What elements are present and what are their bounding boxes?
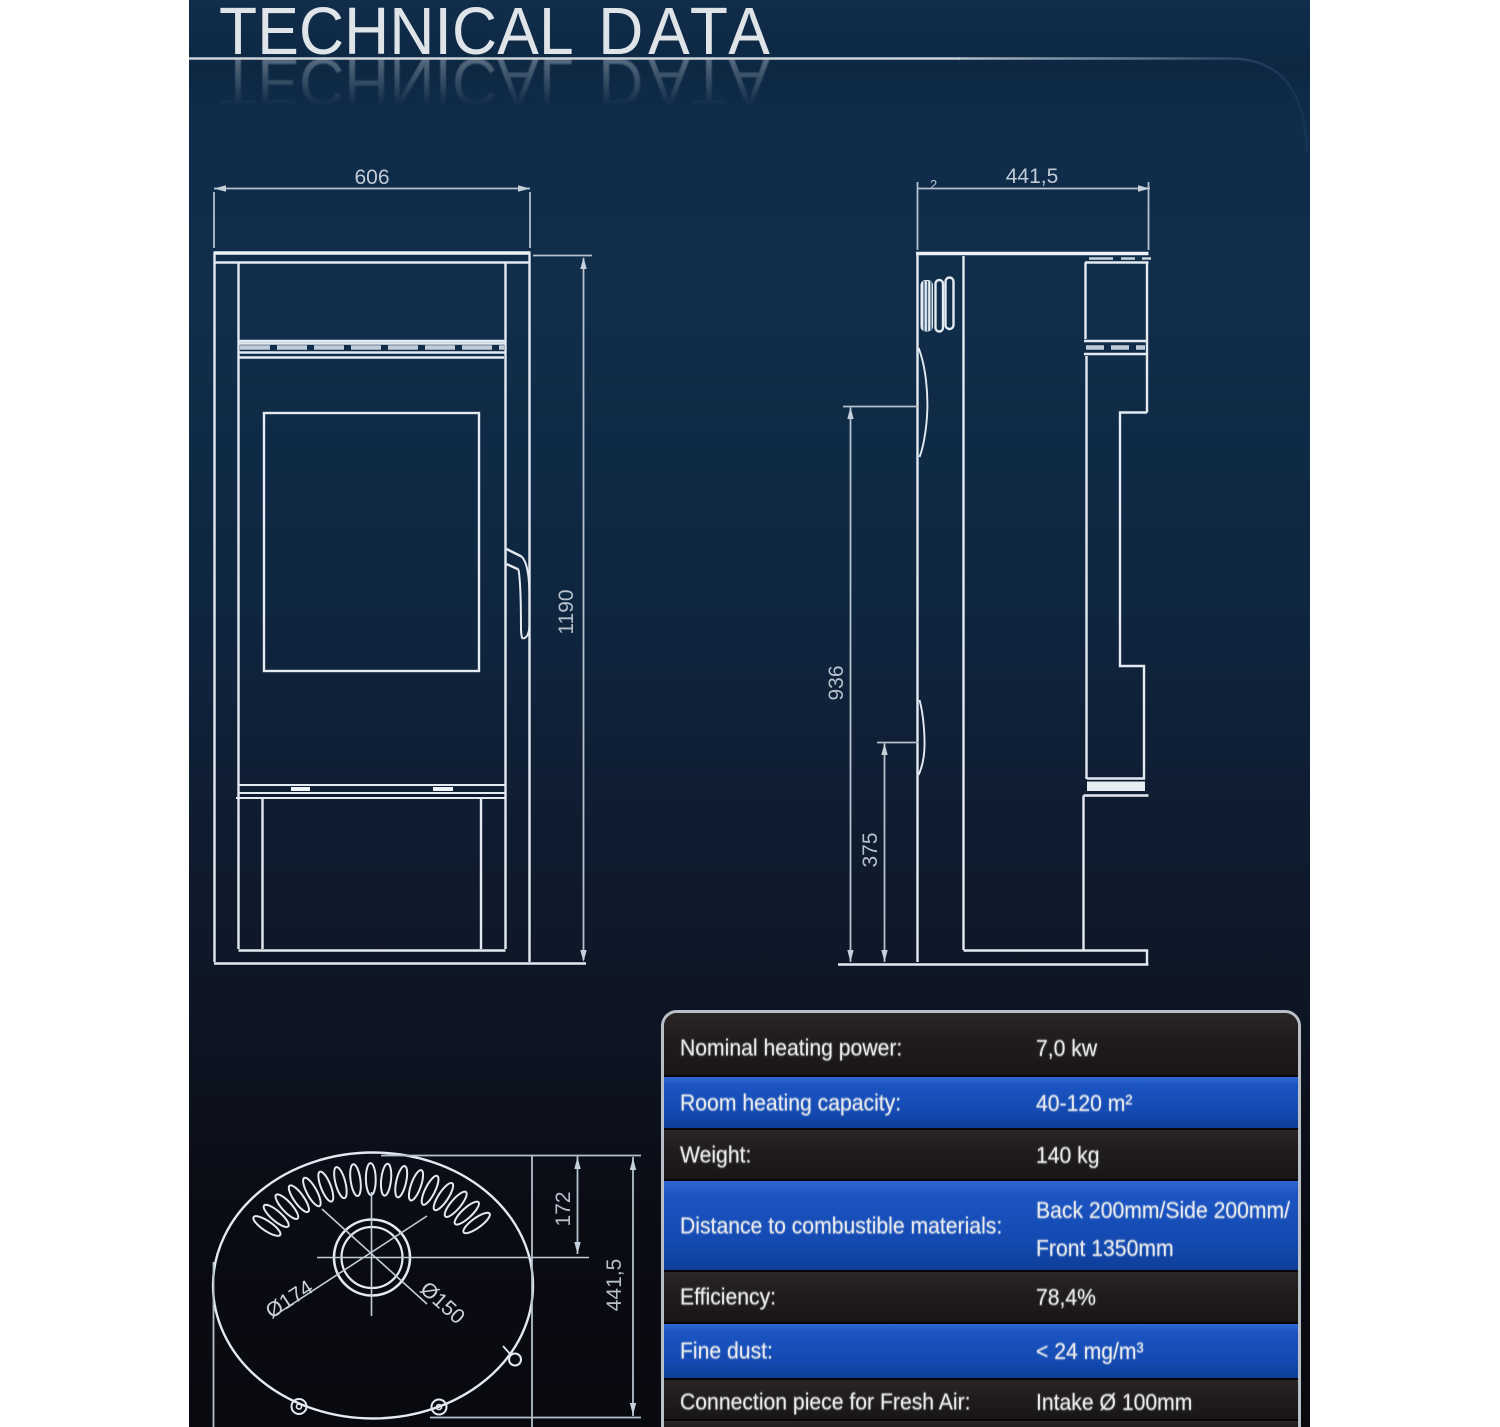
svg-text:441,5: 441,5	[603, 1259, 626, 1312]
svg-text:1190: 1190	[555, 589, 578, 634]
svg-text:606: 606	[354, 166, 389, 189]
svg-text:Ø150: Ø150	[416, 1277, 470, 1328]
svg-text:Ø174: Ø174	[262, 1276, 318, 1324]
svg-text:2: 2	[930, 177, 937, 192]
svg-text:441,5: 441,5	[1006, 165, 1059, 188]
svg-text:375: 375	[859, 832, 882, 867]
svg-text:172: 172	[552, 1191, 575, 1226]
svg-text:936: 936	[825, 665, 848, 700]
